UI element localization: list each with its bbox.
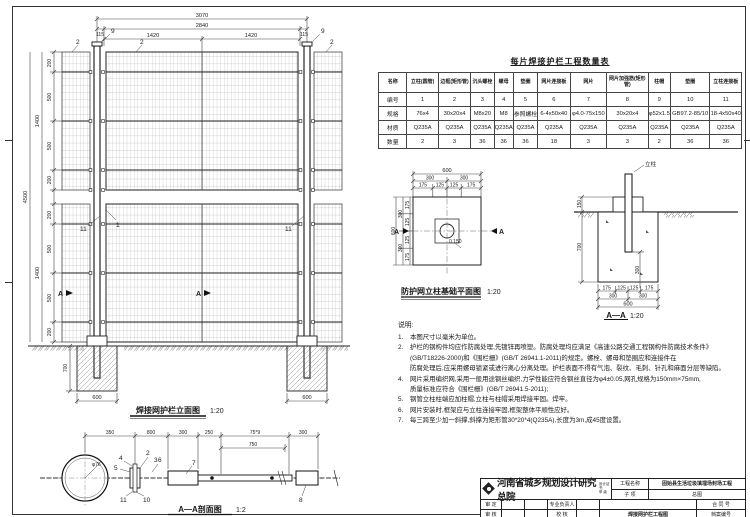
svg-text:A: A <box>196 291 201 298</box>
note-text: 每三跨至少加一斜撑,斜撑为矩形管30*20*4(Q235A),长度为3m,成45… <box>410 416 745 426</box>
section-scale: 1:20 <box>630 313 644 320</box>
qty-cell: 18-4x50x40 <box>710 107 742 121</box>
check-label: 校 核 <box>548 510 577 517</box>
qty-cell: 36 <box>513 135 537 149</box>
qty-cell: 8 <box>607 93 649 107</box>
detail-scale: 1:2 <box>236 507 246 514</box>
callout-post: 1 <box>116 222 120 229</box>
dim-footing-width: 600 <box>302 395 311 401</box>
svg-text:300: 300 <box>639 294 648 300</box>
plan-dim: 175 <box>419 183 428 189</box>
svg-text:175: 175 <box>603 286 612 292</box>
qty-cell: 材质 <box>379 121 407 135</box>
dim-half-right: 1420 <box>245 33 257 39</box>
svg-text:300: 300 <box>609 294 618 300</box>
check-sign <box>577 510 600 517</box>
review-date <box>525 510 548 517</box>
plan-dim: 125 <box>436 183 445 189</box>
callout-mesh: 2 <box>76 39 80 46</box>
callout-cap-left: 9 <box>111 28 115 35</box>
qty-cell: 编号 <box>379 93 407 107</box>
qty-cell: Q235A <box>494 121 513 135</box>
detail-post-dia: φ76 <box>92 462 101 468</box>
note-item: 防腐处理后,应采用螺母锁紧或进行离心分离处理。护栏表面不得有气泡、裂纹、毛刺、针… <box>398 364 745 374</box>
quantity-table: 名称立柱(圆管)边框(矩形管)沉头螺栓螺母垫圈网片连接板网片网片加强筋(矩形管)… <box>378 72 742 149</box>
connection-clip <box>312 71 315 74</box>
registration-tick <box>744 140 750 141</box>
qty-cell: 11 <box>710 93 742 107</box>
archive-label: 档案编号 <box>697 510 745 517</box>
elevation-title: 焊接网护栏立面图 <box>136 405 200 415</box>
qty-cell: 6 <box>538 93 570 107</box>
qty-col-header: 网片加强筋(矩形管) <box>607 73 649 93</box>
connection-clip <box>299 189 302 192</box>
section-aa-drawing: 立柱 150 700 300 175 125 125 175 300 300 6… <box>568 160 748 320</box>
note-item: 7.每三跨至少加一斜撑,斜撑为矩形管30*20*4(Q235A),长度为3m,成… <box>398 416 745 426</box>
qty-cell: 76x4 <box>407 107 438 121</box>
note-item: 质量标准应符合《围栏栅》(GB/T 26941.5-2011); <box>398 385 745 395</box>
note-item: 2.护栏的钢构件均应作防腐处理,先镀锌再喷塑。防腐处理均应满足《高速公路交通工程… <box>398 343 745 353</box>
connection-clip <box>102 223 105 226</box>
svg-text:A: A <box>58 291 63 298</box>
dim-edge-right: 115 <box>300 32 308 38</box>
elevation-left-dims <box>30 50 62 344</box>
subitem-label: 子 项 <box>612 490 649 500</box>
review-label: 审 核 <box>481 510 502 517</box>
connection-clip <box>89 189 92 192</box>
qty-cell: φ52x1.5 <box>648 107 670 121</box>
qty-cell: 3 <box>438 135 470 149</box>
qty-cell: Q235A <box>538 121 570 135</box>
note-text: 护栏的钢构件均应作防腐处理,先镀锌再喷塑。防腐处理均应满足《高速公路交通工程钢构… <box>410 343 745 353</box>
qty-col-header: 立柱(圆管) <box>407 73 438 93</box>
qty-cell: 6-4x50x40 <box>538 107 570 121</box>
qty-col-header: 网片 <box>570 73 607 93</box>
connection-clip <box>89 169 92 172</box>
qty-cell: φ4.0-75x150 <box>570 107 607 121</box>
qty-cell: Q235A <box>438 121 470 135</box>
callout-cap-right: 9 <box>321 28 325 35</box>
note-item: 4.网片采用编织网,采用一般用途钢丝编织,力学性能应符合钢丝直径为φ4±0.05… <box>398 375 745 385</box>
note-text: 钢管立柱柱端应加柱帽,立柱与柱帽采用焊接牢固。焊牢。 <box>410 395 745 405</box>
plan-dim: 300 <box>426 176 435 182</box>
qty-cell: 2 <box>438 93 470 107</box>
note-text: 防腐处理后,应采用螺母锁紧或进行离心分离处理。护栏表面不得有气泡、裂纹、毛刺、针… <box>410 364 745 374</box>
qty-cell: 2 <box>407 135 438 149</box>
qty-col-header: 柱帽 <box>648 73 670 93</box>
svg-text:75*9: 75*9 <box>250 430 261 436</box>
connection-clip <box>299 169 302 172</box>
dim-inner-width: 2840 <box>196 23 208 29</box>
connection-clip <box>89 120 92 123</box>
qty-cell: Q235A <box>570 121 607 135</box>
svg-text:5: 5 <box>114 465 118 472</box>
note-item: 6.网片安装时,框架应与立柱连接牢固,框架整体平顺性应好。 <box>398 406 745 416</box>
callout-plate: 11 <box>285 226 292 233</box>
svg-text:300: 300 <box>398 244 404 253</box>
plan-dim: 175 <box>467 183 476 189</box>
connection-clip <box>312 120 315 123</box>
quantity-table-title: 每片焊接护栏工程数量表 <box>378 56 742 67</box>
note-number: 4. <box>398 375 410 385</box>
svg-text:200: 200 <box>47 176 53 185</box>
qty-cell: 参照螺栓 <box>513 107 537 121</box>
qty-col-header: 螺母 <box>494 73 513 93</box>
dim-edge-left: 115 <box>96 32 104 38</box>
qty-cell: 30x20x4 <box>607 107 649 121</box>
project-name: 固始县生活垃圾填埋场封场工程 <box>649 479 745 489</box>
foundation-plan-drawing: 600 300 300 175 125 125 175 600 300 300 … <box>385 163 520 313</box>
svg-text:500: 500 <box>47 245 53 254</box>
dim-half-left: 1420 <box>147 33 159 39</box>
svg-text:125: 125 <box>630 286 639 292</box>
connection-clip <box>299 272 302 275</box>
notes-heading: 说明: <box>398 320 745 331</box>
note-number: 7. <box>398 416 410 426</box>
qty-cell: 9 <box>648 93 670 107</box>
qty-cell: 10 <box>670 93 710 107</box>
qty-cell: Q235A <box>607 121 649 135</box>
svg-text:500: 500 <box>47 294 53 303</box>
subitem-value: 总图 <box>649 490 745 500</box>
note-number <box>398 364 410 374</box>
callout-plate: 11 <box>80 226 87 233</box>
svg-text:700: 700 <box>577 243 583 252</box>
qty-cell: 36 <box>670 135 710 149</box>
qty-cell: 3 <box>570 135 607 149</box>
qty-cell: 36 <box>471 135 494 149</box>
svg-text:500: 500 <box>47 93 53 102</box>
connection-clip <box>299 223 302 226</box>
qty-col-header: 立柱连接板 <box>710 73 742 93</box>
connection-clip <box>312 189 315 192</box>
institute-cert: 设计证书 甲 级 <box>599 483 611 495</box>
svg-text:175: 175 <box>645 286 654 292</box>
svg-text:175: 175 <box>405 253 411 262</box>
svg-text:750: 750 <box>249 442 258 448</box>
connection-clip <box>312 321 315 324</box>
svg-text:200: 200 <box>47 211 53 220</box>
connection-clip <box>102 321 105 324</box>
qty-cell: 规格 <box>379 107 407 121</box>
note-text: 网片安装时,框架应与立柱连接牢固,框架整体平顺性应好。 <box>410 406 745 416</box>
note-number: 5. <box>398 395 410 405</box>
connection-clip <box>102 189 105 192</box>
connection-clip <box>299 321 302 324</box>
svg-text:6: 6 <box>158 457 162 464</box>
connection-clip <box>299 120 302 123</box>
svg-text:8: 8 <box>299 497 303 504</box>
plan-title: 防护网立柱基础平面图 <box>401 286 481 296</box>
notes-list: 1.本图尺寸以毫米为单位。2.护栏的钢构件均应作防腐处理,先镀锌再喷塑。防腐处理… <box>398 333 745 426</box>
svg-text:500: 500 <box>47 142 53 151</box>
qty-cell: 18 <box>538 135 570 149</box>
elevation-top-dims <box>95 16 309 52</box>
qty-cell: 5 <box>513 93 537 107</box>
qty-cell: Q235A <box>648 121 670 135</box>
qty-cell: 数量 <box>379 135 407 149</box>
notes-block: 说明: 1.本图尺寸以毫米为单位。2.护栏的钢构件均应作防腐处理,先镀锌再喷塑。… <box>398 320 745 426</box>
plan-dim: 125 <box>450 183 459 189</box>
svg-text:125: 125 <box>405 218 411 227</box>
connection-clip <box>89 71 92 74</box>
lead-label: 专业负责人 <box>548 500 577 509</box>
qty-cell: M8x20 <box>471 107 494 121</box>
qty-cell: 36 <box>710 135 742 149</box>
dim-footing-width: 600 <box>92 395 101 401</box>
contract-label: 合 同 号 <box>697 500 745 509</box>
note-number <box>398 354 410 364</box>
plan-dim: 600 <box>442 168 451 174</box>
callout-mesh: 2 <box>330 39 334 46</box>
svg-text:250: 250 <box>205 430 214 436</box>
svg-text:4500: 4500 <box>23 191 29 203</box>
section-title: A—A <box>606 311 626 320</box>
svg-text:800: 800 <box>147 430 156 436</box>
quantity-table-block: 每片焊接护栏工程数量表 名称立柱(圆管)边框(矩形管)沉头螺栓螺母垫圈网片连接板… <box>378 56 742 149</box>
note-item: 1.本图尺寸以毫米为单位。 <box>398 333 745 343</box>
qty-cell: GB97.2-85/10 <box>670 107 710 121</box>
approve-label: 审 定 <box>481 500 502 509</box>
qty-col-header: 边框(矩形管) <box>438 73 470 93</box>
institute-logo-icon <box>483 483 495 495</box>
plan-scale: 1:20 <box>487 289 501 296</box>
qty-cell: 3 <box>607 135 649 149</box>
svg-text:300: 300 <box>635 266 641 275</box>
note-text: 质量标准应符合《围栏栅》(GB/T 26941.5-2011); <box>410 385 745 395</box>
svg-text:300: 300 <box>179 430 188 436</box>
connection-clip <box>102 169 105 172</box>
svg-text:175: 175 <box>405 201 411 210</box>
drawing-name-cell-top <box>600 500 697 509</box>
connection-clip <box>299 71 302 74</box>
svg-text:125: 125 <box>405 236 411 245</box>
qty-cell: 3 <box>471 93 494 107</box>
qty-col-header: 网片连接板 <box>538 73 570 93</box>
note-number: 1. <box>398 333 410 343</box>
approve-sign <box>502 500 525 509</box>
svg-text:A: A <box>499 229 504 236</box>
note-text: (GB/T18226-2000)和《围栏栅》(GB/T 26941.1-2011… <box>410 354 745 364</box>
title-block: 河南省城乡规划设计研究总院 设计证书 甲 级 工程名称 固始县生活垃圾填埋场封场… <box>480 478 746 517</box>
connection-clip <box>312 169 315 172</box>
qty-cell: 4 <box>494 93 513 107</box>
svg-text:300: 300 <box>299 430 308 436</box>
drawing-sheet: { "sheet": {"line_color": "#333333", "bg… <box>0 0 750 517</box>
note-item: (GB/T18226-2000)和《围栏栅》(GB/T 26941.1-2011… <box>398 354 745 364</box>
approve-date <box>525 500 548 509</box>
institute-cell: 河南省城乡规划设计研究总院 设计证书 甲 级 <box>481 479 612 499</box>
svg-text:1400: 1400 <box>35 267 41 279</box>
connection-clip <box>312 223 315 226</box>
qty-cell: Q235A <box>670 121 710 135</box>
qty-cell: Q235A <box>513 121 537 135</box>
svg-text:A: A <box>394 229 399 236</box>
dim-footing-depth: 700 <box>63 364 69 373</box>
connection-clip <box>102 272 105 275</box>
qty-cell: 7 <box>570 93 607 107</box>
note-text: 网片采用编织网,采用一般用途钢丝编织,力学性能应符合钢丝直径为φ4±0.05,网… <box>410 375 745 385</box>
section-post-label: 立柱 <box>645 160 657 168</box>
detail-geometry <box>40 450 340 506</box>
connection-clip <box>89 272 92 275</box>
svg-text:300: 300 <box>398 210 404 219</box>
plan-level: 0.150 <box>449 239 462 245</box>
svg-text:4: 4 <box>119 455 123 462</box>
qty-cell: 36 <box>494 135 513 149</box>
svg-text:1400: 1400 <box>35 115 41 127</box>
connection-clip <box>102 71 105 74</box>
note-number <box>398 385 410 395</box>
connection-clip <box>89 321 92 324</box>
svg-text:200: 200 <box>47 59 53 68</box>
connection-clip <box>312 272 315 275</box>
drawing-name: 焊接网护栏工程图 <box>600 510 697 517</box>
project-label: 工程名称 <box>612 479 649 489</box>
dim-overall-width: 3070 <box>196 13 208 19</box>
elevation-left-dim-labels: 200 500 500 200 200 500 500 200 1400 140… <box>23 59 53 337</box>
detail-dim-labels: 350 800 300 250 75*9 300 750 <box>106 430 308 448</box>
qty-cell: Q235A <box>407 121 438 135</box>
svg-text:150: 150 <box>577 200 583 209</box>
plan-geometry <box>401 187 493 275</box>
qty-col-header: 名称 <box>379 73 407 93</box>
note-number: 2. <box>398 343 410 353</box>
qty-col-header: 沉头螺栓 <box>471 73 494 93</box>
svg-text:200: 200 <box>47 328 53 337</box>
qty-cell: 2 <box>648 135 670 149</box>
detail-aa-drawing: 350 800 300 250 75*9 300 750 φ76 2 3 4 <box>40 424 350 517</box>
connection-clip <box>102 120 105 123</box>
note-item: 5.钢管立柱柱端应加柱帽,立柱与柱帽采用焊接牢固。焊牢。 <box>398 395 745 405</box>
svg-text:10: 10 <box>143 497 151 504</box>
svg-text:7: 7 <box>192 460 196 467</box>
detail-title: A—A剖面图 <box>178 504 222 514</box>
svg-text:125: 125 <box>618 286 627 292</box>
detail-dim-lines <box>83 432 320 474</box>
svg-text:2: 2 <box>146 450 150 457</box>
svg-text:600: 600 <box>623 302 632 308</box>
mesh-panels <box>62 52 342 342</box>
review-sign <box>502 510 525 517</box>
qty-cell: 30x20x4 <box>438 107 470 121</box>
qty-col-header: 垫圈 <box>513 73 537 93</box>
svg-text:11: 11 <box>120 497 127 504</box>
fence-elevation-drawing: 3070 2840 115 115 1420 1420 9 9 2 2 2 11… <box>8 6 368 422</box>
institute-name: 河南省城乡规划设计研究总院 <box>497 475 598 503</box>
svg-text:350: 350 <box>106 430 115 436</box>
qty-cell: Q235A <box>471 121 494 135</box>
note-number: 6. <box>398 406 410 416</box>
lead-sign <box>577 500 600 509</box>
plan-dim: 300 <box>460 176 469 182</box>
callout-mesh: 2 <box>140 39 144 46</box>
qty-col-header: 垫圈 <box>670 73 710 93</box>
section-geometry <box>574 165 738 282</box>
qty-cell: Q235A <box>710 121 742 135</box>
ground-and-footings <box>28 336 350 391</box>
note-text: 本图尺寸以毫米为单位。 <box>410 333 745 343</box>
qty-cell: 1 <box>407 93 438 107</box>
elevation-scale: 1:20 <box>210 408 224 415</box>
qty-cell: M8 <box>494 107 513 121</box>
cap-callout-leaders <box>102 34 320 42</box>
